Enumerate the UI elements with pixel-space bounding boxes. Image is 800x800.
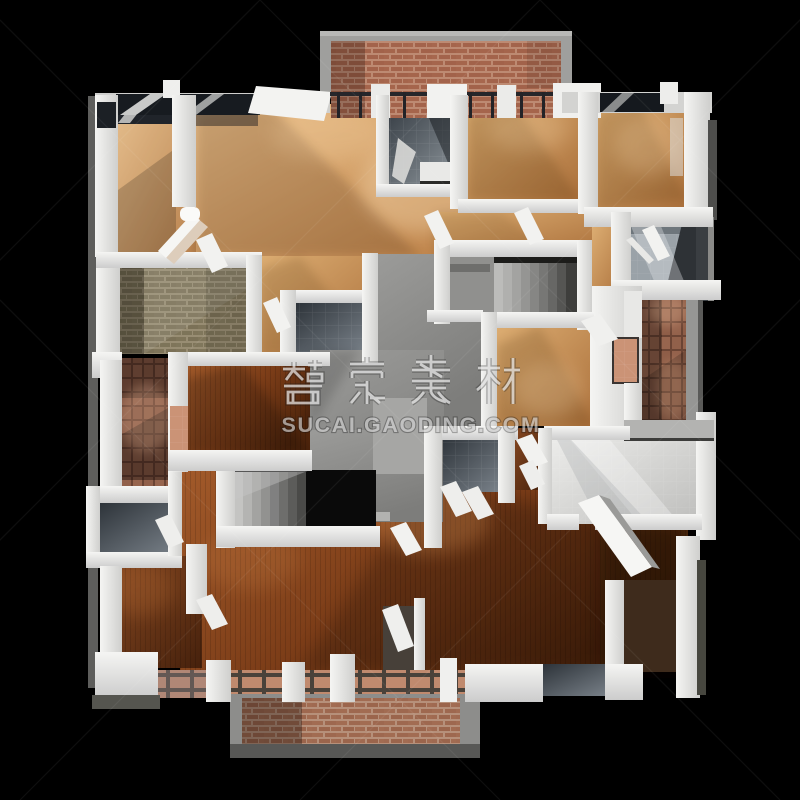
- svg-text:SUCAI.GAODING.COM: SUCAI.GAODING.COM: [282, 413, 541, 437]
